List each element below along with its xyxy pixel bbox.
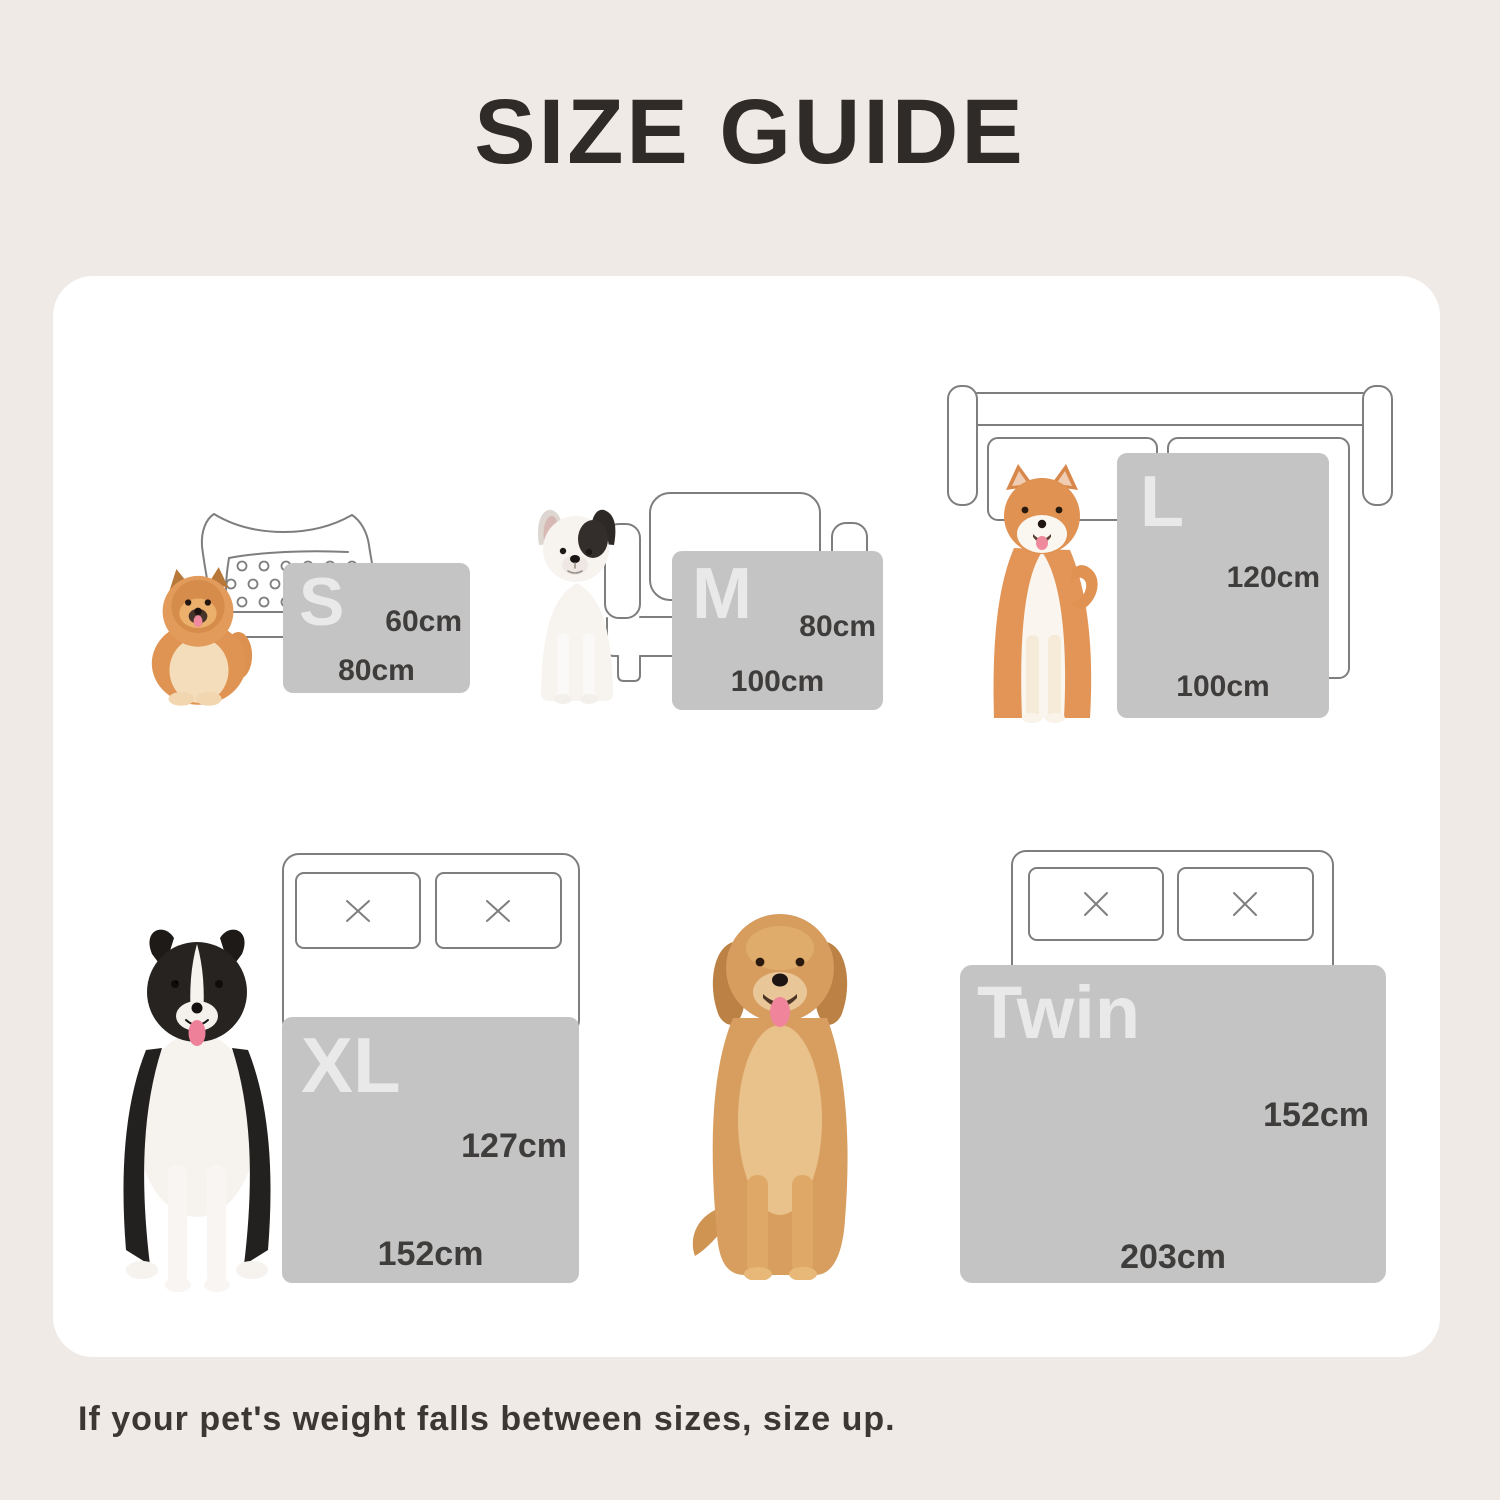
size-twin-width-label: 203cm xyxy=(960,1240,1386,1274)
pillow-x-icon xyxy=(487,901,509,921)
size-m-width-label: 100cm xyxy=(672,667,883,697)
size-l-height-label: 120cm xyxy=(1227,563,1320,593)
size-s-height-label: 60cm xyxy=(385,607,462,637)
pomeranian-dog-image xyxy=(140,556,258,706)
bed-illustration-xl xyxy=(280,850,585,1040)
pillow-x-icon xyxy=(1085,893,1107,915)
size-m-swatch: M 80cm 100cm xyxy=(672,551,883,710)
footnote: If your pet's weight falls between sizes… xyxy=(78,1400,896,1439)
shiba-inu-dog-image xyxy=(978,460,1106,725)
size-xl-letter: XL xyxy=(301,1026,401,1104)
size-m-height-label: 80cm xyxy=(799,612,876,642)
size-s-width-label: 80cm xyxy=(283,656,470,686)
size-l-swatch: L 120cm 100cm xyxy=(1117,453,1329,718)
size-xl-height-label: 127cm xyxy=(461,1129,567,1163)
size-s-letter: S xyxy=(299,568,344,636)
golden-retriever-dog-image xyxy=(685,890,875,1280)
size-l-letter: L xyxy=(1140,466,1184,538)
size-twin-swatch: Twin 152cm 203cm xyxy=(960,965,1386,1283)
size-m-letter: M xyxy=(692,558,752,630)
border-collie-dog-image xyxy=(112,920,282,1295)
size-s-swatch: S 60cm 80cm xyxy=(283,563,470,693)
size-xl-swatch: XL 127cm 152cm xyxy=(282,1017,579,1283)
size-twin-height-label: 152cm xyxy=(1263,1098,1369,1132)
size-guide-infographic: SIZE GUIDE xyxy=(0,0,1500,1500)
size-twin-letter: Twin xyxy=(977,976,1140,1050)
page-title: SIZE GUIDE xyxy=(0,86,1500,178)
pillow-x-icon xyxy=(1234,893,1256,915)
size-xl-width-label: 152cm xyxy=(282,1237,579,1271)
size-l-width-label: 100cm xyxy=(1117,672,1329,702)
pillow-x-icon xyxy=(347,901,369,921)
french-bulldog-dog-image xyxy=(527,505,627,705)
